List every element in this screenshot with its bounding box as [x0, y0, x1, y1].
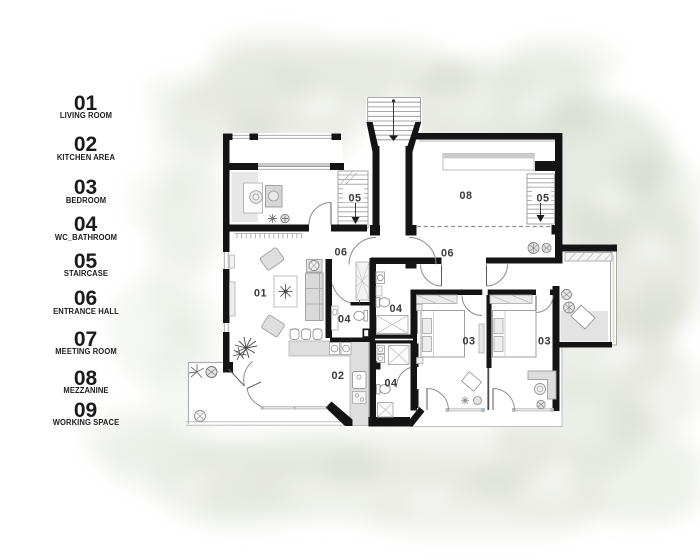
- svg-text:05: 05: [537, 193, 550, 205]
- svg-text:08: 08: [460, 190, 473, 202]
- svg-text:03: 03: [463, 336, 476, 348]
- svg-text:06: 06: [335, 247, 348, 259]
- svg-text:05: 05: [349, 193, 362, 205]
- svg-text:02: 02: [332, 370, 345, 382]
- svg-text:04: 04: [390, 303, 403, 315]
- svg-text:04: 04: [385, 378, 398, 390]
- svg-text:06: 06: [441, 248, 454, 260]
- svg-text:03: 03: [538, 336, 551, 348]
- svg-text:01: 01: [254, 288, 267, 300]
- svg-text:04: 04: [338, 314, 351, 326]
